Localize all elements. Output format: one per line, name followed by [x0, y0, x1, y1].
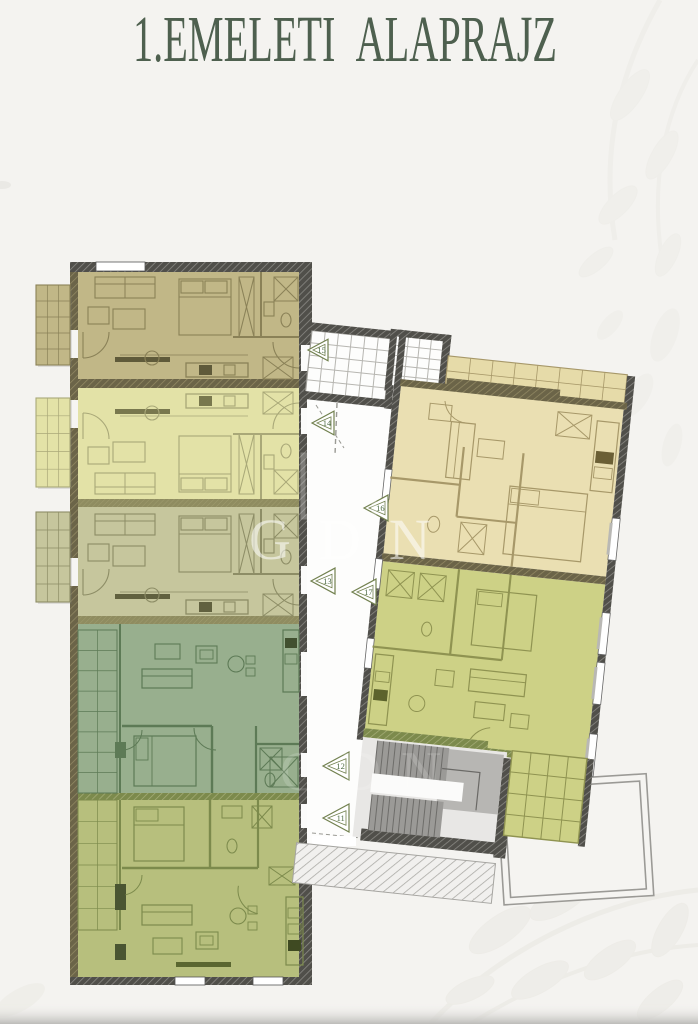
svg-text:13: 13 — [323, 576, 332, 586]
svg-text:11: 11 — [337, 813, 345, 823]
svg-text:1.EMELETI ALAPRAJZ: 1.EMELETI ALAPRAJZ — [133, 3, 557, 76]
svg-text:17: 17 — [364, 587, 373, 597]
svg-text:GDN: GDN — [280, 741, 461, 803]
svg-text:15: 15 — [317, 345, 326, 355]
svg-text:14: 14 — [323, 418, 332, 428]
